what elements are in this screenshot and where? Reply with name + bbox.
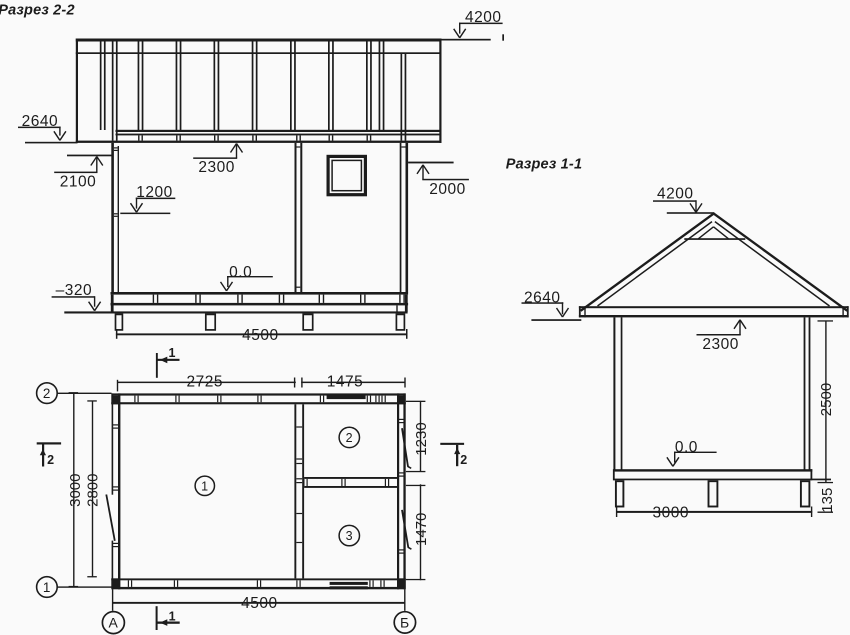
- svg-text:2000: 2000: [429, 181, 465, 198]
- svg-text:2500: 2500: [818, 383, 835, 416]
- svg-text:2: 2: [460, 453, 467, 467]
- svg-text:0.0: 0.0: [229, 264, 252, 281]
- svg-text:1470: 1470: [413, 513, 430, 546]
- svg-text:2300: 2300: [702, 336, 738, 353]
- svg-text:4500: 4500: [241, 595, 277, 612]
- svg-text:0.0: 0.0: [675, 439, 698, 456]
- svg-text:Разрез 1-1: Разрез 1-1: [506, 157, 582, 173]
- svg-text:1: 1: [43, 580, 51, 595]
- svg-text:А: А: [108, 615, 118, 631]
- svg-text:2: 2: [346, 431, 353, 445]
- svg-text:1230: 1230: [413, 422, 430, 455]
- svg-text:2725: 2725: [186, 373, 222, 390]
- svg-text:Б: Б: [400, 614, 410, 630]
- svg-text:2300: 2300: [198, 159, 234, 176]
- svg-text:1: 1: [201, 479, 208, 493]
- svg-text:135: 135: [819, 488, 836, 513]
- svg-text:2: 2: [43, 386, 51, 401]
- svg-text:3000: 3000: [653, 505, 689, 522]
- svg-text:1475: 1475: [327, 373, 363, 390]
- svg-text:1: 1: [169, 609, 176, 623]
- svg-text:2800: 2800: [84, 474, 101, 507]
- svg-text:2: 2: [47, 453, 54, 467]
- svg-text:2100: 2100: [60, 174, 96, 191]
- svg-text:Разрез 2-2: Разрез 2-2: [0, 2, 75, 18]
- svg-text:4500: 4500: [242, 327, 278, 344]
- svg-text:4200: 4200: [657, 186, 693, 203]
- svg-text:3000: 3000: [67, 474, 84, 507]
- svg-text:1: 1: [168, 346, 175, 360]
- svg-text:3: 3: [346, 529, 353, 543]
